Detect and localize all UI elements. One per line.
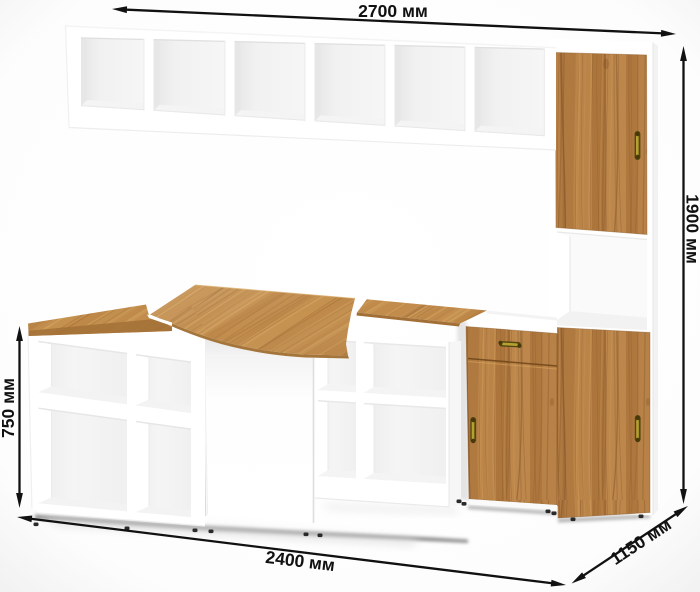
svg-text:1900 мм: 1900 мм	[683, 194, 700, 264]
svg-text:2700 мм: 2700 мм	[358, 1, 428, 21]
svg-text:750 мм: 750 мм	[0, 378, 18, 438]
